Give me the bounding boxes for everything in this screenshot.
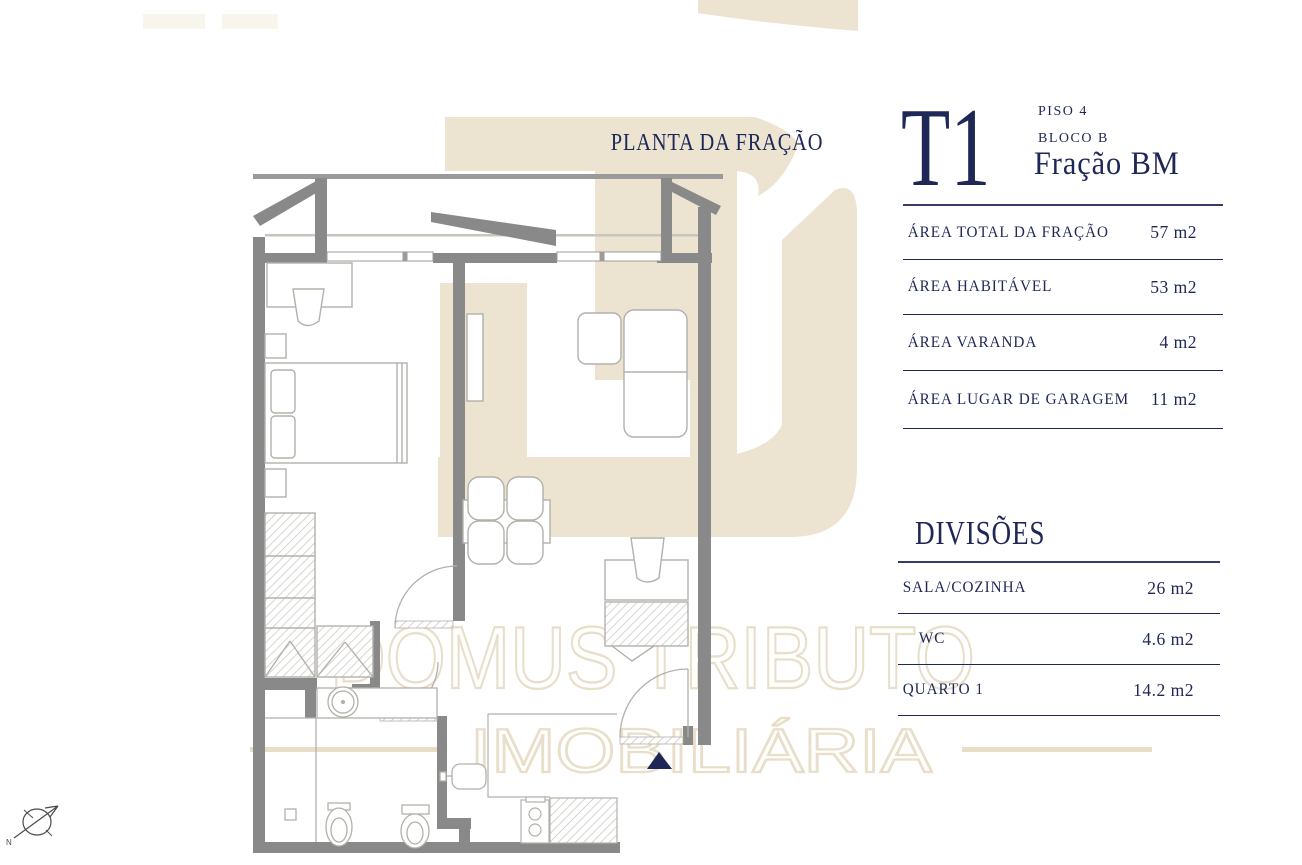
north-label: N	[6, 838, 12, 847]
brochure-page: DOMUS TRIBUTO IMOBILIÁRIA	[0, 0, 1302, 865]
floor-label: PISO 4	[1038, 104, 1088, 120]
division-label: WC	[898, 630, 945, 648]
area-value: 4 m2	[1160, 332, 1198, 353]
area-label: ÁREA HABITÁVEL	[903, 278, 1052, 296]
area-value: 57 m2	[1150, 222, 1197, 243]
block-label: BLOCO B	[1038, 131, 1109, 147]
fraction-label: Fração BM	[1034, 146, 1180, 183]
kitchen-fittings	[488, 714, 617, 843]
entrance-arrow-icon	[647, 752, 672, 769]
living-furniture	[463, 310, 688, 661]
area-label: ÁREA TOTAL DA FRAÇÃO	[903, 224, 1109, 242]
division-value: 26 m2	[1147, 578, 1194, 599]
areas-table: ÁREA TOTAL DA FRAÇÃO 57 m2 ÁREA HABITÁVE…	[903, 206, 1223, 429]
divisions-title: DIVISÕES	[915, 515, 1045, 553]
typology-label: T1	[901, 92, 991, 204]
table-row: ÁREA TOTAL DA FRAÇÃO 57 m2	[903, 206, 1223, 260]
division-label: QUARTO 1	[898, 681, 984, 699]
table-row: QUARTO 1 14.2 m2	[898, 665, 1220, 716]
division-value: 14.2 m2	[1133, 680, 1194, 701]
north-compass-icon: N	[6, 806, 58, 847]
table-row: ÁREA VARANDA 4 m2	[903, 315, 1223, 371]
area-label: ÁREA LUGAR DE GARAGEM	[903, 391, 1129, 409]
table-row: ÁREA HABITÁVEL 53 m2	[903, 260, 1223, 315]
divisions-table: SALA/COZINHA 26 m2 WC 4.6 m2 QUARTO 1 14…	[898, 563, 1220, 716]
bedroom-furniture	[265, 263, 407, 677]
division-label: SALA/COZINHA	[898, 579, 1026, 597]
table-row: ÁREA LUGAR DE GARAGEM 11 m2	[903, 371, 1223, 429]
table-row: WC 4.6 m2	[898, 614, 1220, 665]
area-label: ÁREA VARANDA	[903, 334, 1037, 352]
area-value: 53 m2	[1150, 277, 1197, 298]
table-row: SALA/COZINHA 26 m2	[898, 563, 1220, 614]
area-value: 11 m2	[1151, 389, 1197, 410]
division-value: 4.6 m2	[1142, 629, 1194, 650]
plan-title: PLANTA DA FRAÇÃO	[611, 130, 790, 157]
